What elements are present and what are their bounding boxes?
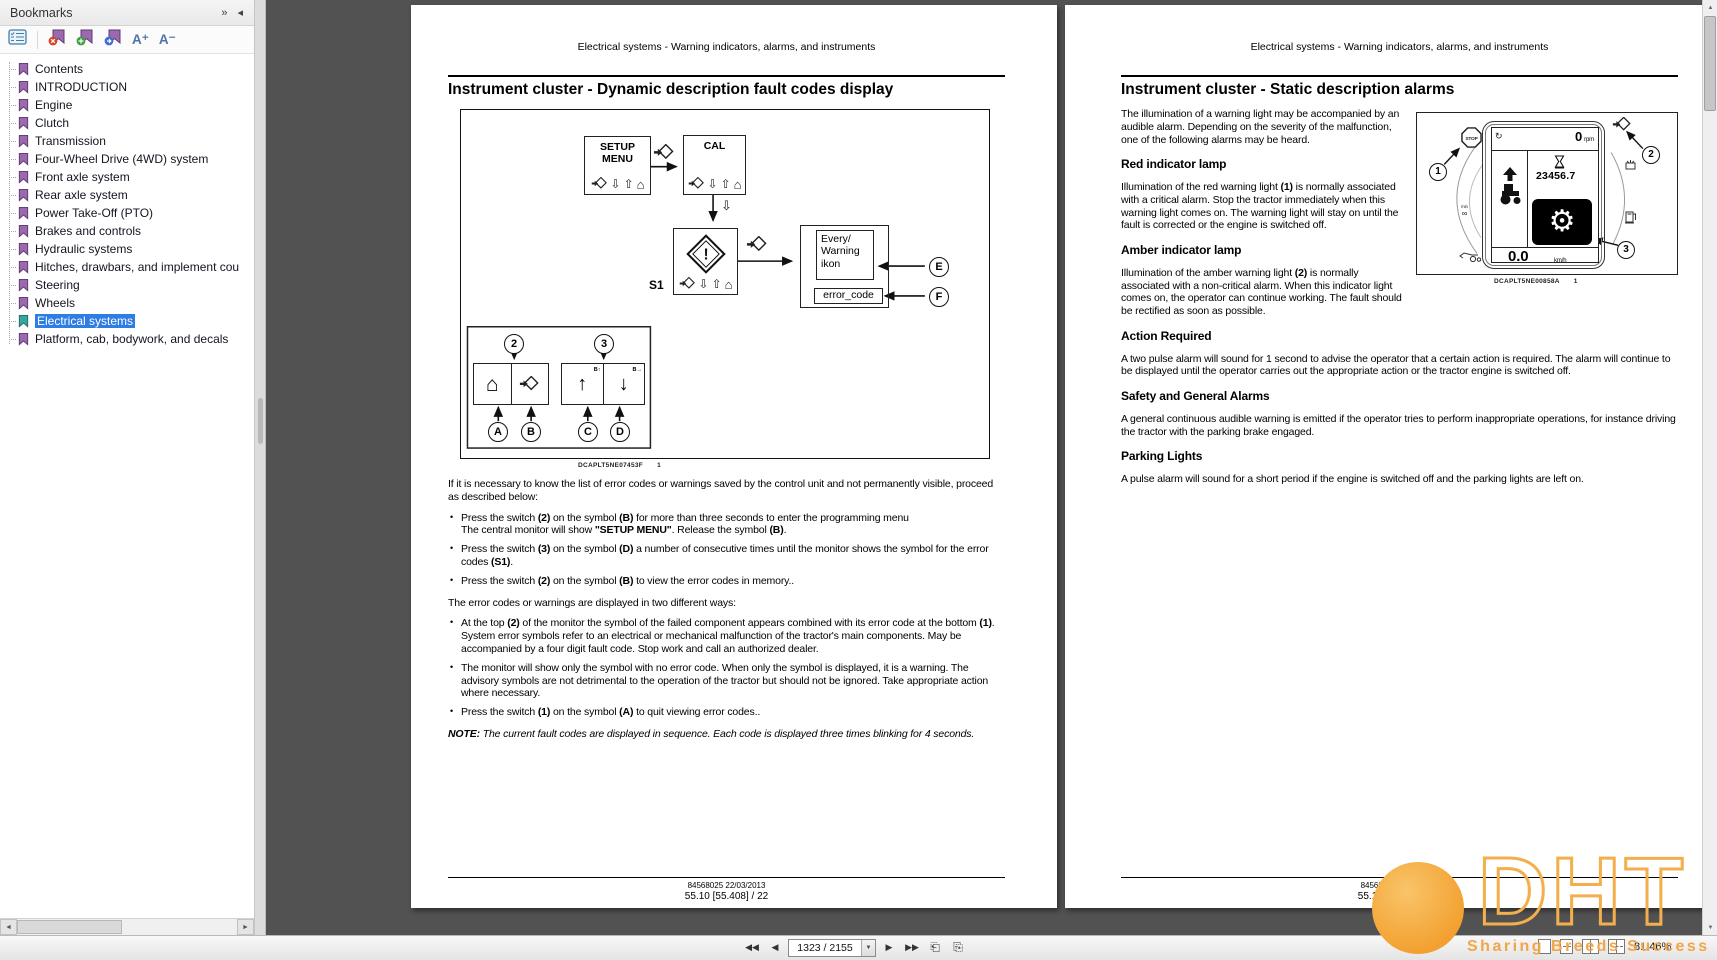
hours-readout: 23456.7 — [1536, 170, 1575, 183]
error-display-box: ! ⇩⇧⌂ — [673, 228, 738, 295]
bookmark-flag-icon — [17, 170, 30, 184]
callout-A: A — [488, 422, 508, 442]
title-rule — [448, 75, 1005, 77]
warning-diamond-icon: ! — [684, 233, 728, 275]
bookmark-label: Front axle system — [35, 170, 130, 184]
previous-page-button[interactable]: ◀ — [765, 938, 785, 957]
home-icon: ⌂ — [725, 278, 733, 291]
next-page-button[interactable]: ▶ — [879, 938, 899, 957]
bookmarks-panel-title: Bookmarks — [10, 6, 216, 20]
bookmark-flag-icon — [17, 224, 30, 238]
bookmark-flag-icon — [17, 296, 30, 310]
arrow-up-icon: ⇧ — [721, 177, 731, 191]
footer-doc-number: 84568025 22/03/2013 — [448, 881, 1005, 890]
list-item: The monitor will show only the symbol wi… — [448, 662, 1005, 700]
section-heading: Action Required — [1121, 329, 1678, 344]
bookmark-item[interactable]: Wheels — [0, 294, 254, 312]
setup-menu-box: SETUP MENU ⇩⇧⌂ — [584, 136, 651, 195]
bookmark-label: INTRODUCTION — [35, 80, 127, 94]
callout-2: 2 — [1642, 146, 1660, 164]
bookmark-item[interactable]: Power Take-Off (PTO) — [0, 204, 254, 222]
bookmarks-horizontal-scrollbar[interactable]: ◄ ► — [0, 918, 254, 935]
bookmark-flag-icon — [17, 332, 30, 346]
page-number-input[interactable]: 1323 / 2155 — [789, 940, 861, 956]
pdf-viewer-window: Bookmarks » ◂ A⁺ A⁻ ContentsINTRODUCTION… — [0, 0, 1717, 960]
hourmeter-icon: min∞ — [1461, 205, 1468, 219]
options-icon[interactable] — [8, 29, 27, 50]
bookmark-item[interactable]: Platform, cab, bodywork, and decals — [0, 330, 254, 348]
bookmark-item[interactable]: Steering — [0, 276, 254, 294]
cluster-screen: ↻ 0rpm 23456.7 ⚙ — [1491, 127, 1599, 263]
section-heading: Safety and General Alarms — [1121, 389, 1678, 404]
switch-icons-box-2: ↑B↑ ↓B→ — [561, 363, 645, 405]
select-diamond-icon — [688, 177, 705, 191]
fuel-pump-icon — [1624, 210, 1638, 224]
bookmarks-toolbar: A⁺ A⁻ — [0, 26, 254, 54]
speed-unit: km/h — [1554, 258, 1566, 265]
scrollbar-thumb[interactable] — [17, 920, 122, 934]
instrument-cluster-figure: STOP 1 min∞ ↻ 0rpm — [1416, 112, 1678, 286]
speed-readout: 0.0 — [1508, 248, 1528, 266]
switch-icons-box-1: ⌂ — [473, 363, 549, 405]
list-item: Press the switch (2) on the symbol (B) t… — [448, 575, 1005, 588]
bookmark-item[interactable]: Clutch — [0, 114, 254, 132]
bookmark-label: Engine — [35, 98, 72, 112]
s1-label: S1 — [649, 278, 664, 292]
bookmark-label: Platform, cab, bodywork, and decals — [35, 332, 228, 346]
bookmark-item[interactable]: Rear axle system — [0, 186, 254, 204]
bookmark-label: Hydraulic systems — [35, 242, 132, 256]
home-icon: ⌂ — [486, 374, 499, 395]
bookmark-label: Brakes and controls — [35, 224, 141, 238]
bookmark-flag-icon — [17, 206, 30, 220]
delete-bookmark-icon[interactable] — [48, 29, 66, 51]
note-paragraph: NOTE: The current fault codes are displa… — [448, 728, 1005, 741]
scroll-up-button[interactable]: ▲ — [1703, 0, 1717, 15]
first-page-button[interactable]: ◀◀ — [742, 938, 762, 957]
select-diamond-icon — [653, 144, 675, 162]
page-number-field: 1323 / 2155 ▼ — [788, 939, 876, 957]
bookmark-flag-icon — [17, 80, 30, 94]
intro-paragraph: If it is necessary to know the list of e… — [448, 478, 1005, 504]
page-navigation: ◀◀ ◀ 1323 / 2155 ▼ ▶ ▶▶ ⎗ ⎘ — [742, 938, 968, 957]
callout-C: C — [578, 422, 598, 442]
callout-B: B — [521, 422, 541, 442]
figure-caption: DCAPLT5NE07453F1 — [578, 462, 1005, 469]
decrease-text-size-button[interactable]: A⁻ — [159, 32, 176, 48]
bookmark-flag-icon — [17, 134, 30, 148]
title-rule — [1121, 75, 1678, 77]
bookmarks-panel: Bookmarks » ◂ A⁺ A⁻ ContentsINTRODUCTION… — [0, 0, 254, 935]
increase-text-size-button[interactable]: A⁺ — [132, 32, 149, 48]
bookmark-tree: ContentsINTRODUCTIONEngineClutchTransmis… — [0, 54, 254, 348]
display-modes-list: At the top (2) of the monitor the symbol… — [448, 617, 1005, 719]
bookmark-flag-icon — [17, 152, 30, 166]
bookmark-flag-icon — [17, 260, 30, 274]
bookmark-flag-icon — [17, 314, 30, 328]
section-heading: Parking Lights — [1121, 449, 1678, 464]
new-bookmark-icon[interactable] — [76, 29, 94, 51]
bookmark-item[interactable]: Four-Wheel Drive (4WD) system — [0, 150, 254, 168]
list-item: At the top (2) of the monitor the symbol… — [448, 617, 1005, 655]
front-loader-icon — [1459, 251, 1481, 262]
page-header: Electrical systems - Warning indicators,… — [448, 41, 1005, 53]
page-dropdown-button[interactable]: ▼ — [861, 940, 875, 956]
select-diamond-icon — [1612, 117, 1632, 133]
go-to-bookmark-icon[interactable] — [104, 29, 122, 51]
bookmark-item[interactable]: Transmission — [0, 132, 254, 150]
body-text: STOP 1 min∞ ↻ 0rpm — [1121, 108, 1678, 486]
bookmark-flag-icon — [17, 62, 30, 76]
bookmark-label: Contents — [35, 62, 83, 76]
scrollbar-thumb[interactable] — [1704, 16, 1716, 111]
bookmark-label: Electrical systems — [35, 314, 135, 328]
transmission-warning-box: ⚙ — [1532, 199, 1592, 245]
arrow-down-icon: ⇩ — [611, 177, 621, 191]
toolbar-separator — [37, 31, 38, 49]
bookmark-flag-icon — [17, 116, 30, 130]
bottom-toolbar: ◀◀ ◀ 1323 / 2155 ▼ ▶ ▶▶ ⎗ ⎘ 81.46% — [0, 935, 1717, 960]
svg-text:STOP: STOP — [1465, 136, 1478, 142]
section-body: A pulse alarm will sound for a short per… — [1121, 473, 1678, 486]
bookmark-flag-icon — [17, 98, 30, 112]
select-diamond-icon — [746, 236, 768, 254]
bookmark-item[interactable]: Brakes and controls — [0, 222, 254, 240]
next-view-button[interactable]: ⎘ — [948, 938, 968, 957]
arrow-down-icon: ⇩ — [699, 277, 709, 291]
bookmark-item[interactable]: Contents — [0, 60, 254, 78]
page-header: Electrical systems - Warning indicators,… — [1121, 41, 1678, 53]
bookmark-label: Wheels — [35, 296, 75, 310]
list-item: Press the switch (2) on the symbol (B) f… — [448, 512, 1005, 538]
every-warning-ikon-box: Every/ Warning ikon — [816, 230, 874, 280]
fault-codes-flowchart-figure: SETUP MENU ⇩⇧⌂ CAL ⇩⇧⌂ ⇩ ! ⇩⇧⌂ S1 Every/… — [460, 109, 990, 459]
gear-oil-icon: ⚙ — [1549, 207, 1576, 237]
bookmarks-panel-header: Bookmarks » ◂ — [0, 0, 254, 26]
bookmark-flag-icon — [17, 188, 30, 202]
select-diamond-icon — [591, 177, 608, 191]
stop-sign-icon: STOP — [1461, 127, 1482, 148]
callout-2: 2 — [504, 334, 524, 354]
brake-icon — [1624, 159, 1637, 172]
footer-page-number: 55.10 [55.408] / 22 — [448, 891, 1005, 902]
panel-splitter[interactable] — [254, 0, 266, 935]
hourglass-icon — [1554, 155, 1565, 169]
bookmark-item[interactable]: INTRODUCTION — [0, 78, 254, 96]
last-page-button[interactable]: ▶▶ — [902, 938, 922, 957]
bookmark-flag-icon — [17, 242, 30, 256]
list-item: Press the switch (1) on the symbol (A) t… — [448, 706, 1005, 719]
watermark-brand: DHT — [1478, 842, 1717, 943]
bookmark-item[interactable]: Hydraulic systems — [0, 240, 254, 258]
left-page: Electrical systems - Warning indicators,… — [411, 5, 1057, 908]
body-text: If it is necessary to know the list of e… — [448, 478, 1005, 741]
watermark-logo-circle — [1372, 862, 1464, 954]
callout-3: 3 — [594, 334, 614, 354]
callout-F: F — [929, 287, 949, 307]
bookmark-label: Power Take-Off (PTO) — [35, 206, 153, 220]
middle-paragraph: The error codes or warnings are displaye… — [448, 597, 1005, 610]
collapse-panel-icon[interactable]: ◂ — [232, 6, 248, 19]
right-page: Electrical systems - Warning indicators,… — [1065, 5, 1711, 908]
callout-D: D — [610, 422, 630, 442]
arrow-up-icon: ⇧ — [624, 177, 634, 191]
page-title: Instrument cluster - Static description … — [1121, 81, 1678, 99]
callout-3: 3 — [1617, 241, 1635, 259]
bookmark-label: Clutch — [35, 116, 69, 130]
page-title: Instrument cluster - Dynamic description… — [448, 81, 1005, 99]
list-item: Press the switch (3) on the symbol (D) a… — [448, 543, 1005, 569]
error-code-box: error_code — [814, 288, 883, 304]
bookmark-item[interactable]: Engine — [0, 96, 254, 114]
bookmark-item[interactable]: Electrical systems — [0, 312, 254, 330]
shift-up-arrow-icon: ↑ — [577, 374, 587, 394]
bookmark-item[interactable]: Hitches, drawbars, and implement cou — [0, 258, 254, 276]
bookmark-label: Rear axle system — [35, 188, 128, 202]
scroll-left-button[interactable]: ◄ — [0, 919, 17, 935]
bookmark-label: Four-Wheel Drive (4WD) system — [35, 152, 208, 166]
tractor-icon — [1496, 166, 1524, 206]
callout-E: E — [929, 257, 949, 277]
callout-1: 1 — [1429, 163, 1447, 181]
watermark-tagline: Sharing Breeds Success — [1467, 938, 1717, 956]
bookmark-flag-icon — [17, 278, 30, 292]
bookmark-label: Hitches, drawbars, and implement cou — [35, 260, 239, 274]
cal-box: CAL ⇩⇧⌂ — [683, 135, 746, 195]
shift-down-arrow-icon: ↓ — [619, 374, 629, 394]
arrow-down-icon: ⇩ — [721, 198, 732, 214]
arrow-down-icon: ⇩ — [708, 177, 718, 191]
bookmark-label: Steering — [35, 278, 80, 292]
section-body: A general continuous audible warning is … — [1121, 413, 1678, 439]
bookmark-label: Transmission — [35, 134, 106, 148]
select-diamond-icon — [679, 277, 696, 291]
rotation-icon: ↻ — [1495, 131, 1502, 142]
splitter-grip[interactable] — [258, 398, 263, 444]
section-body: A two pulse alarm will sound for 1 secon… — [1121, 353, 1678, 379]
arrow-up-icon: ⇧ — [712, 277, 722, 291]
document-vertical-scrollbar[interactable]: ▲ ▼ — [1702, 0, 1717, 935]
previous-view-button[interactable]: ⎗ — [925, 938, 945, 957]
scroll-right-button[interactable]: ► — [237, 919, 254, 935]
procedure-list: Press the switch (2) on the symbol (B) f… — [448, 512, 1005, 588]
home-icon: ⌂ — [734, 178, 742, 191]
bookmark-item[interactable]: Front axle system — [0, 168, 254, 186]
rpm-readout: 0rpm — [1575, 129, 1594, 145]
svg-text:!: ! — [703, 247, 708, 264]
figure-caption: DCAPLT5NE00858A1 — [1494, 278, 1678, 286]
home-icon: ⌂ — [637, 178, 645, 191]
expand-options-icon[interactable]: » — [216, 7, 232, 19]
select-diamond-icon — [519, 376, 540, 393]
page-footer: 84568025 22/03/2013 55.10 [55.408] / 22 — [448, 877, 1005, 902]
